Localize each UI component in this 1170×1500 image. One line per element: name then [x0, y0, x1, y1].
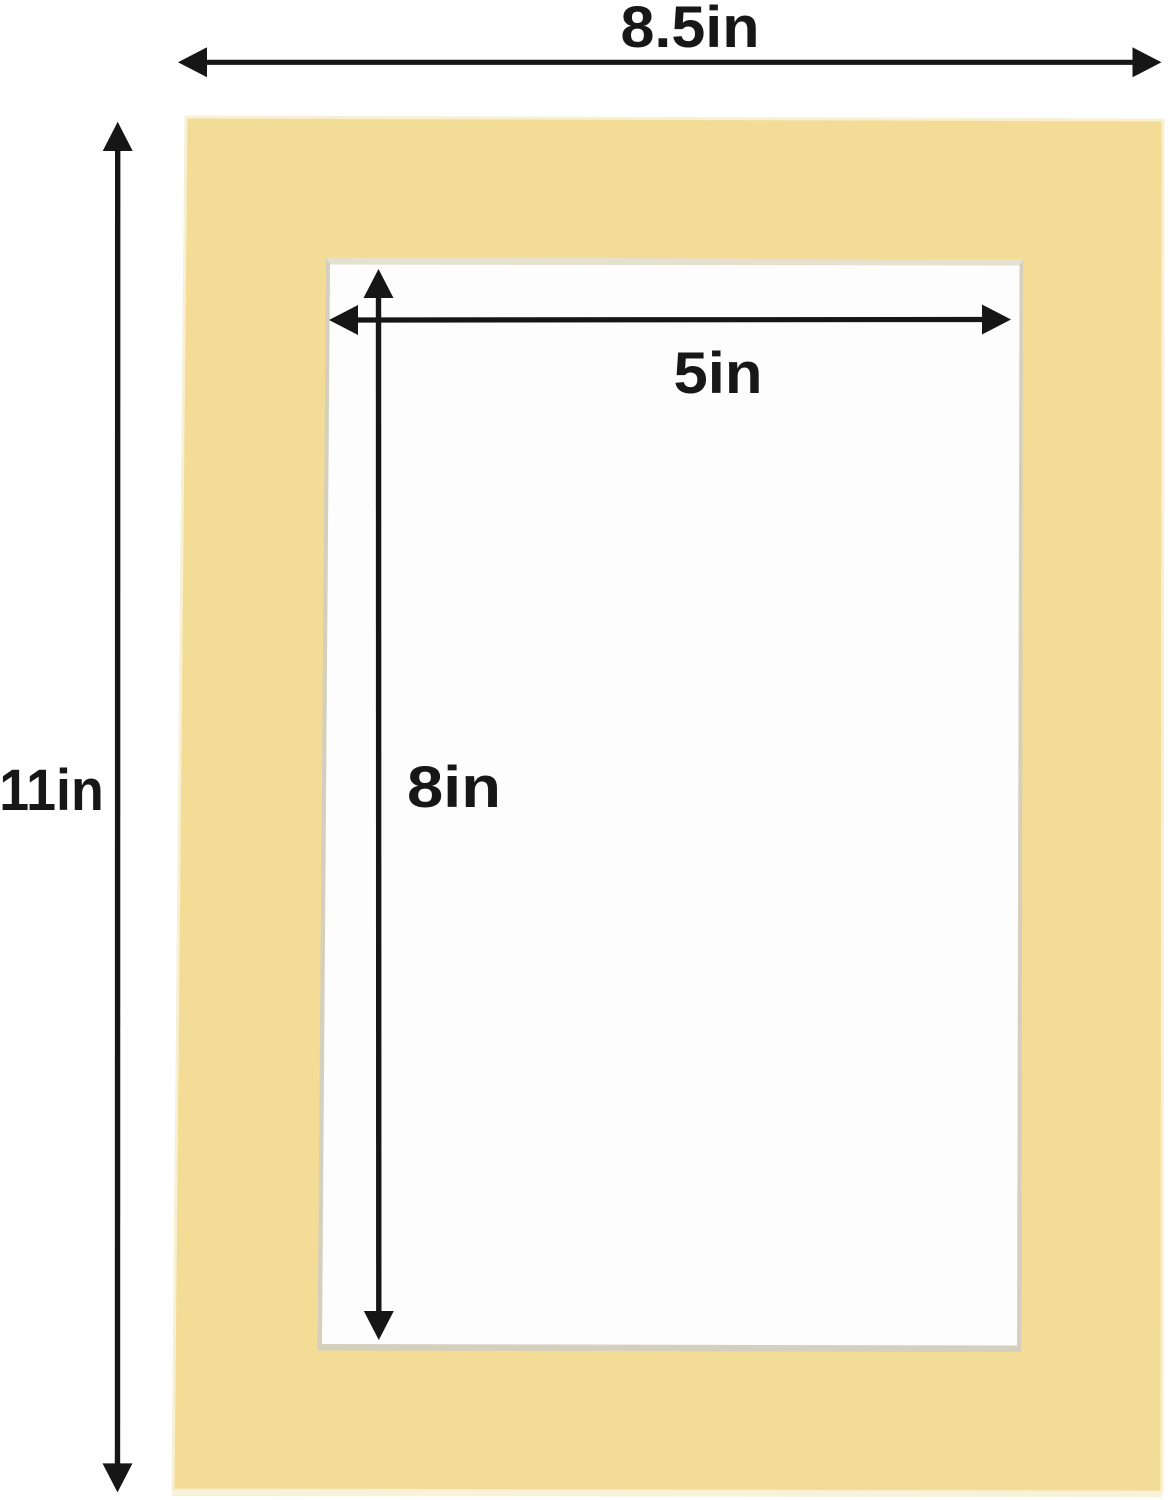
svg-text:8.5in: 8.5in [621, 0, 760, 60]
svg-text:11in: 11in [0, 758, 104, 823]
svg-text:8in: 8in [407, 755, 501, 820]
svg-text:5in: 5in [674, 341, 763, 406]
